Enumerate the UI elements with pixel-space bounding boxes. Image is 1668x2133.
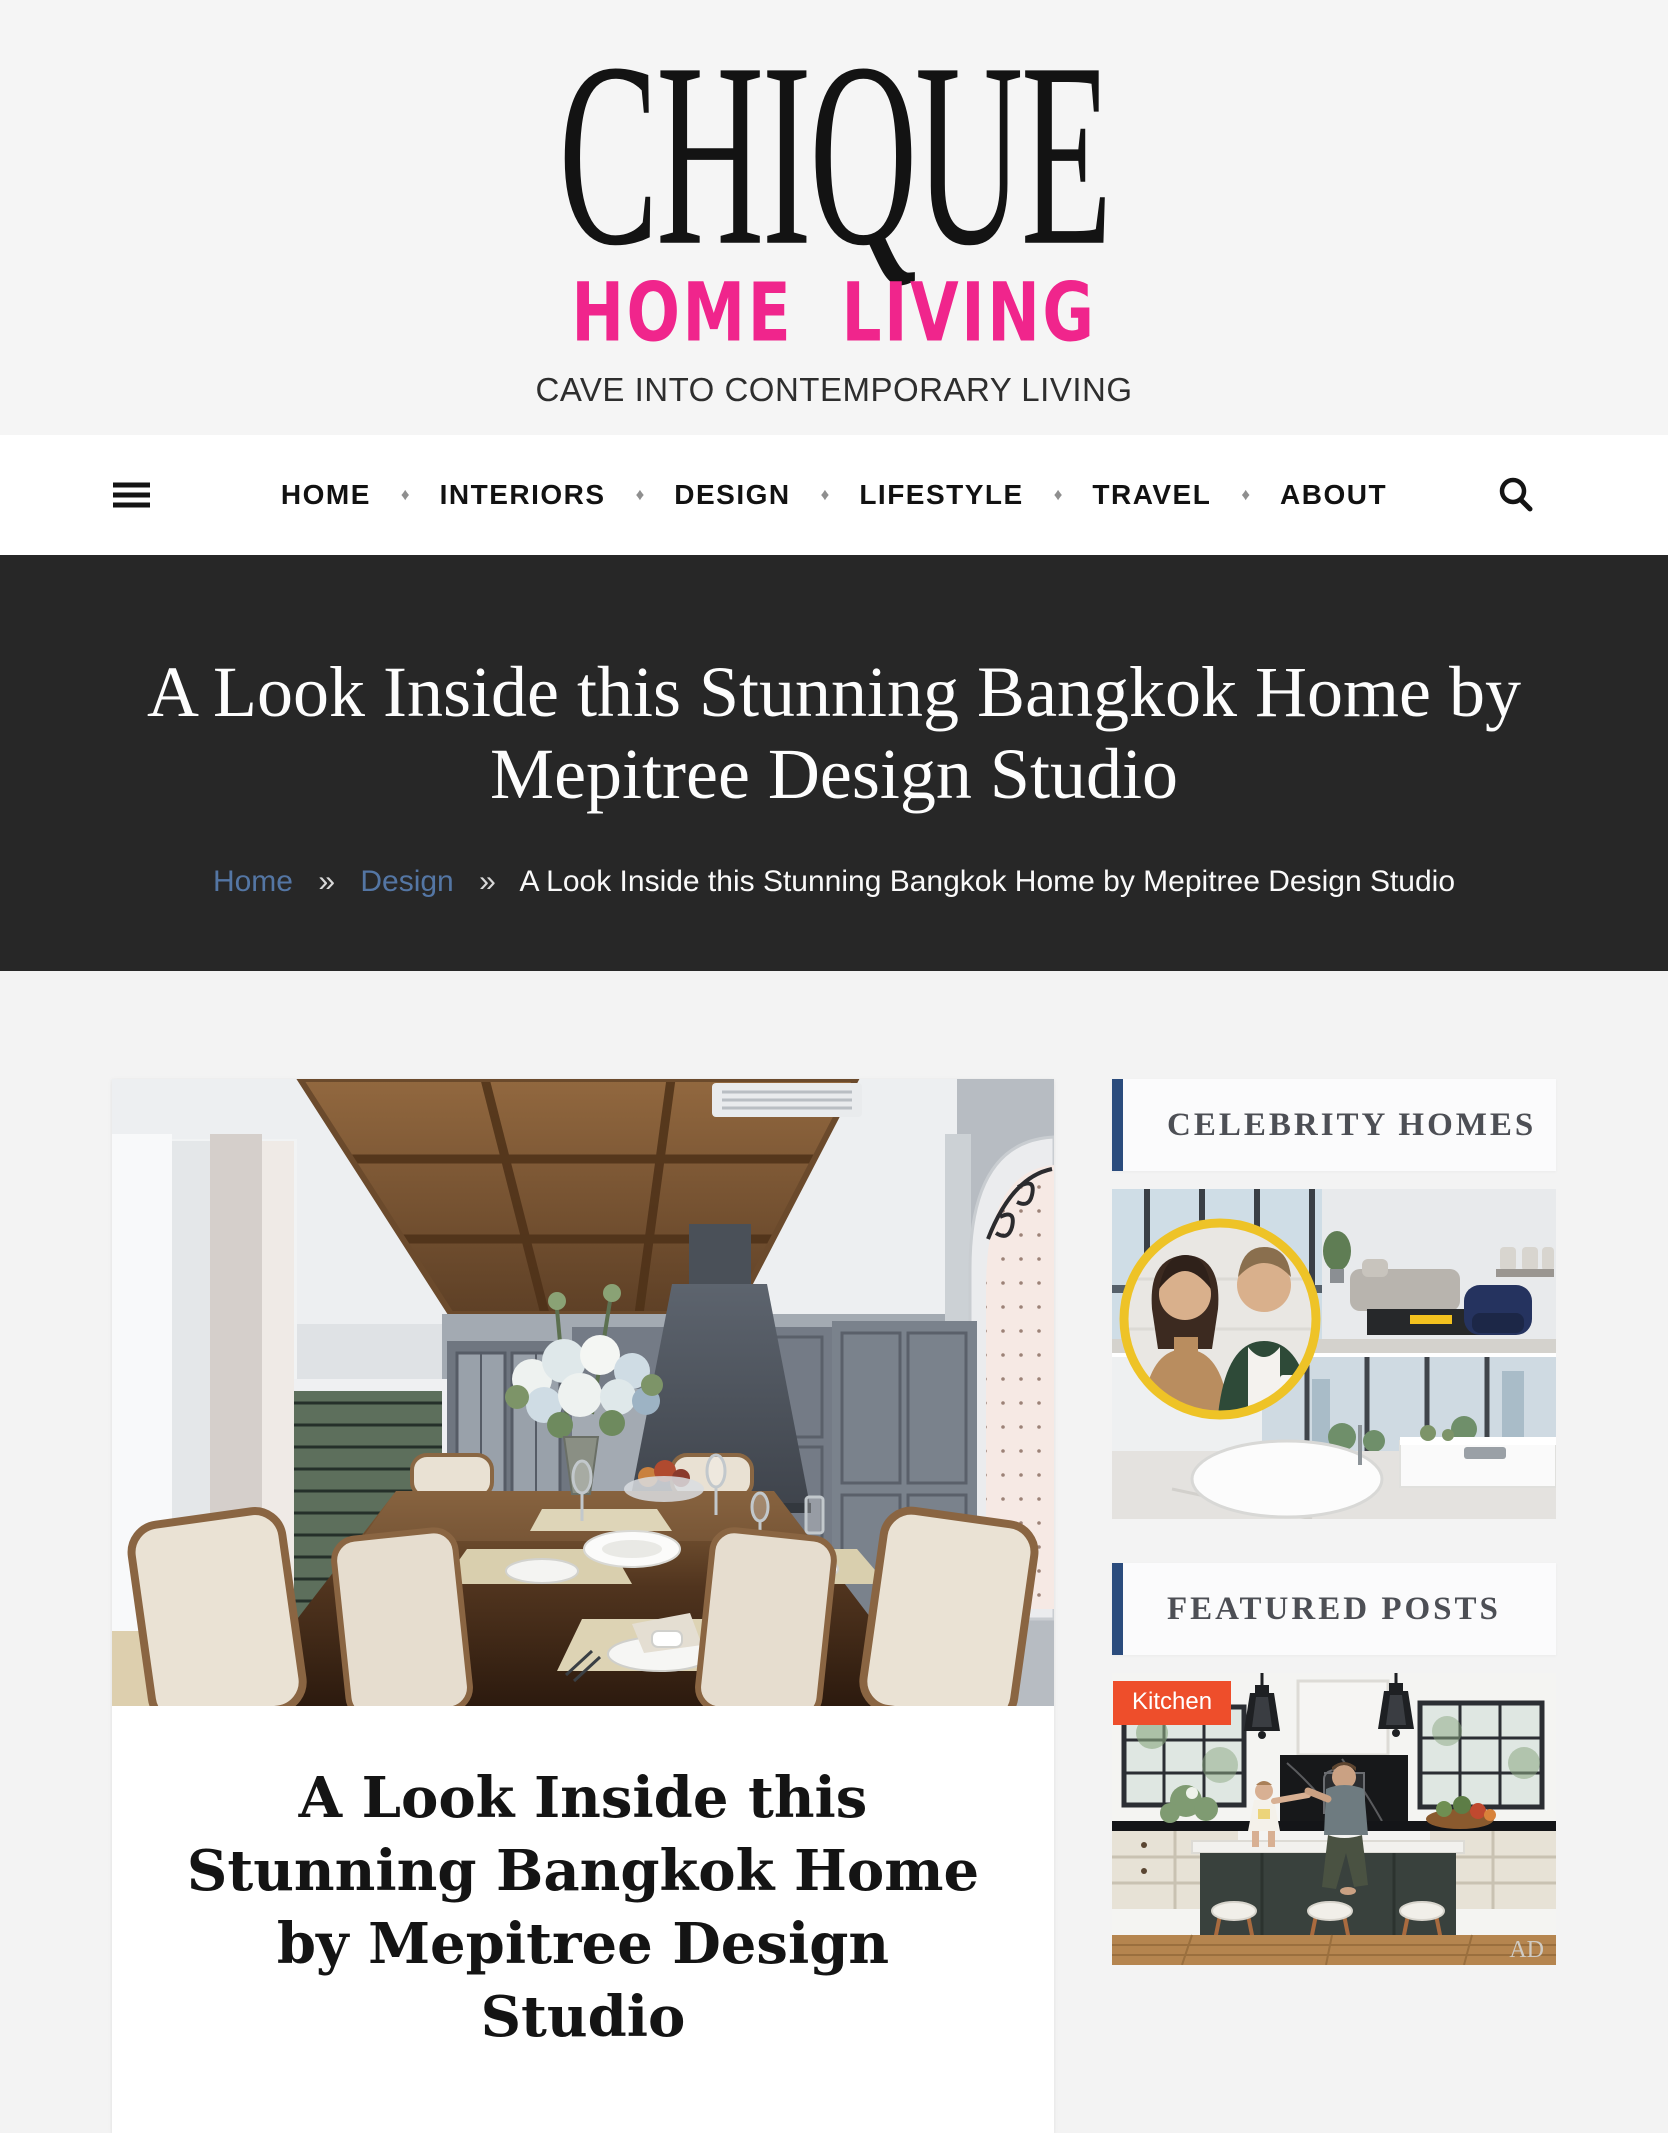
- breadcrumb-separator: »: [318, 865, 335, 898]
- site-header: CHIQUE HOME LIVING CAVE INTO CONTEMPORAR…: [0, 0, 1668, 435]
- breadcrumb-design-link[interactable]: Design: [360, 865, 453, 898]
- diamond-separator-icon: ♦: [1241, 485, 1250, 505]
- menu-icon[interactable]: [113, 478, 150, 513]
- breadcrumb-separator: »: [479, 865, 496, 898]
- nav-item-interiors[interactable]: INTERIORS: [440, 479, 606, 511]
- widget-celebrity-homes: CELEBRITY HOMES: [1112, 1079, 1556, 1519]
- featured-post-thumbnail[interactable]: AD Kitchen: [1112, 1673, 1556, 1965]
- widget-title: FEATURED POSTS: [1167, 1591, 1501, 1628]
- widget-featured-posts: FEATURED POSTS: [1112, 1563, 1556, 1965]
- site-logo[interactable]: CHIQUE HOME LIVING: [0, 6, 1668, 353]
- sidebar: CELEBRITY HOMES: [1112, 1079, 1556, 1965]
- hero-banner: A Look Inside this Stunning Bangkok Home…: [0, 555, 1668, 971]
- widget-title: CELEBRITY HOMES: [1167, 1107, 1536, 1144]
- breadcrumb-current: A Look Inside this Stunning Bangkok Home…: [519, 865, 1455, 898]
- search-icon[interactable]: [1496, 475, 1536, 515]
- diamond-separator-icon: ♦: [401, 485, 410, 505]
- article-title: A Look Inside this Stunning Bangkok Home…: [112, 1706, 1054, 2133]
- celebrity-homes-thumbnail[interactable]: [1112, 1189, 1556, 1519]
- dining-room-illustration: [112, 1079, 1054, 1706]
- nav-item-travel[interactable]: TRAVEL: [1092, 479, 1211, 511]
- celebrity-home-illustration: [1112, 1189, 1556, 1519]
- photo-watermark: AD: [1509, 1937, 1544, 1963]
- page-title: A Look Inside this Stunning Bangkok Home…: [114, 651, 1554, 815]
- breadcrumb: Home » Design » A Look Inside this Stunn…: [0, 865, 1668, 899]
- article-featured-image: [112, 1079, 1054, 1706]
- category-badge[interactable]: Kitchen: [1113, 1681, 1231, 1725]
- logo-subtitle: HOME LIVING: [571, 269, 1096, 357]
- logo-title: CHIQUE: [558, 40, 1109, 270]
- widget-header: FEATURED POSTS: [1112, 1563, 1556, 1655]
- diamond-separator-icon: ♦: [1054, 485, 1063, 505]
- diamond-separator-icon: ♦: [821, 485, 830, 505]
- nav-item-about[interactable]: ABOUT: [1280, 479, 1387, 511]
- widget-header: CELEBRITY HOMES: [1112, 1079, 1556, 1171]
- breadcrumb-home-link[interactable]: Home: [213, 865, 293, 898]
- content-area: A Look Inside this Stunning Bangkok Home…: [112, 971, 1556, 2133]
- nav-item-design[interactable]: DESIGN: [674, 479, 790, 511]
- nav-item-home[interactable]: HOME: [281, 479, 371, 511]
- article-card: A Look Inside this Stunning Bangkok Home…: [112, 1079, 1054, 2133]
- nav-item-lifestyle[interactable]: LIFESTYLE: [859, 479, 1023, 511]
- main-column: A Look Inside this Stunning Bangkok Home…: [112, 1079, 1054, 2133]
- main-nav: HOME ♦ INTERIORS ♦ DESIGN ♦ LIFESTYLE ♦ …: [0, 435, 1668, 555]
- diamond-separator-icon: ♦: [636, 485, 645, 505]
- site-tagline: CAVE INTO CONTEMPORARY LIVING: [0, 371, 1668, 435]
- nav-list: HOME ♦ INTERIORS ♦ DESIGN ♦ LIFESTYLE ♦ …: [266, 479, 1402, 511]
